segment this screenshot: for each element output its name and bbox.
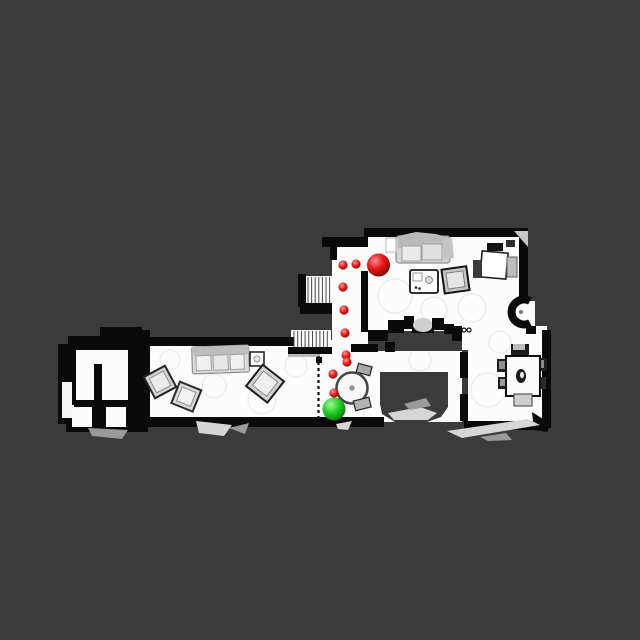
wall-dining-topstub xyxy=(526,326,536,334)
wall-stairs-upper-left xyxy=(298,274,306,307)
door-hinge-dot xyxy=(519,310,523,314)
goal-marker xyxy=(367,254,390,277)
path-waypoint-7 xyxy=(342,357,351,366)
staircase-upper xyxy=(308,277,330,303)
path-waypoint-8 xyxy=(328,369,337,378)
wall-stairs-upper-bottom xyxy=(300,303,332,314)
wall-top-left xyxy=(322,237,368,247)
path-waypoint-9 xyxy=(329,388,338,397)
agent-marker xyxy=(323,398,346,421)
path-waypoint-5 xyxy=(340,328,349,337)
coffee-table xyxy=(410,270,438,293)
path-waypoint-3 xyxy=(338,282,347,291)
scene-viewport xyxy=(0,0,640,640)
path-waypoint-4 xyxy=(339,305,348,314)
floorplan-map xyxy=(0,0,640,640)
armchair-upper xyxy=(441,266,469,293)
sofa-lower xyxy=(192,345,250,374)
wall-corner-stub xyxy=(330,245,337,260)
wall-corridor-divider xyxy=(361,271,368,332)
stairs-lower-pad xyxy=(291,330,331,347)
wall-stairs-lower-bottom xyxy=(288,347,332,354)
background xyxy=(0,0,640,640)
wall-dining-left-b xyxy=(460,394,468,421)
bathroom-divider xyxy=(74,400,128,407)
path-waypoint-1 xyxy=(338,260,347,269)
path-waypoint-2 xyxy=(351,259,360,268)
wall-corridor-hall xyxy=(351,344,378,352)
bathroom-inner-wall xyxy=(94,364,102,403)
wall-dining-left-a xyxy=(460,352,468,378)
sofa-upper xyxy=(386,232,454,263)
side-table xyxy=(250,352,264,366)
wall-livingroom-top xyxy=(146,337,294,346)
